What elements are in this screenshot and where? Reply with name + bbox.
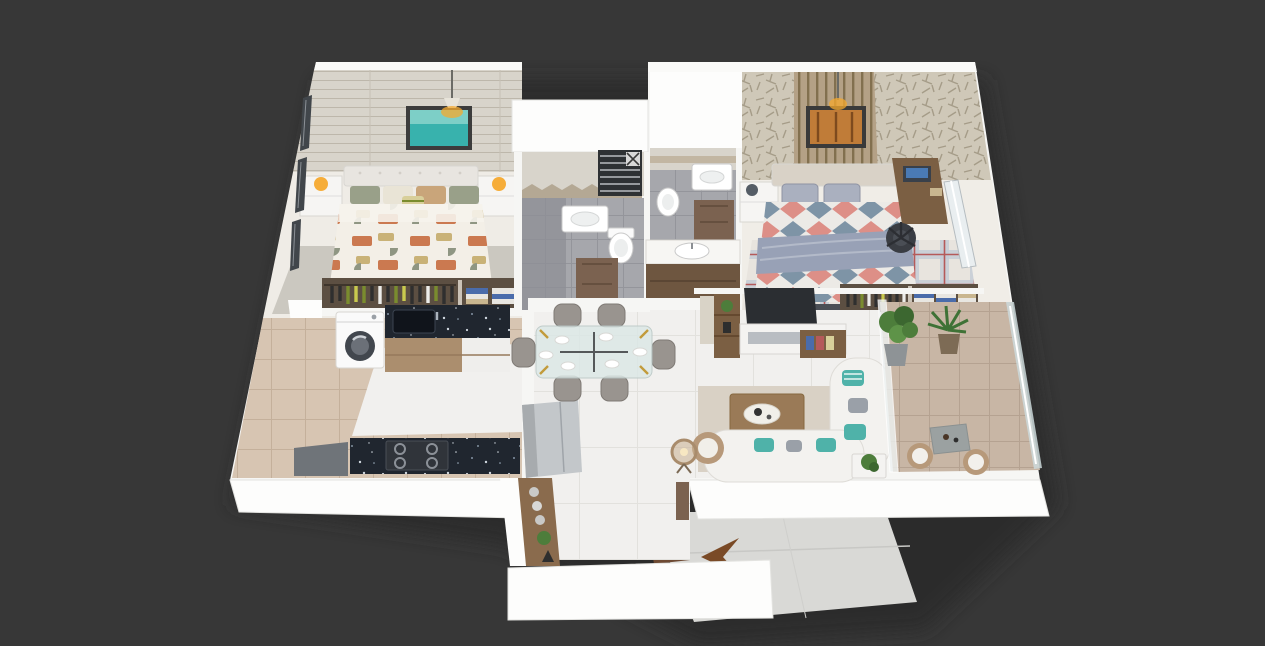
plate (599, 333, 613, 341)
front-wall-left (230, 480, 520, 518)
tufted-headboard (344, 166, 478, 186)
books (806, 336, 814, 350)
shower-corner (522, 198, 566, 310)
plate (561, 362, 575, 370)
refrigerator (522, 400, 582, 478)
side-table-plant (852, 454, 886, 478)
laptop-screen (906, 168, 928, 178)
teal-cushion (842, 370, 864, 386)
pillow (449, 186, 479, 204)
pendant-glow (829, 98, 847, 110)
dining-chair (598, 304, 625, 327)
room-common-bathroom (512, 100, 652, 310)
dining-chair (652, 340, 675, 369)
books (826, 336, 834, 350)
dark-table-lamp (746, 184, 758, 196)
pendant-glow (441, 106, 463, 118)
books (930, 188, 942, 196)
coffee-cup (943, 434, 949, 440)
washer-knob (372, 315, 377, 320)
coffee-cup (954, 438, 959, 443)
gray-cabinet (294, 442, 348, 476)
kitchen-sink (393, 310, 435, 333)
floor-plan-render (0, 0, 1265, 646)
glass-dining-table (536, 326, 652, 378)
toilet (608, 228, 634, 263)
plate (605, 360, 619, 368)
lamp-bulb (680, 448, 688, 456)
teal-cushion (754, 438, 774, 452)
dining-chair (554, 376, 581, 401)
shelf-plant (721, 300, 733, 312)
bedroom2-wall-top (648, 62, 977, 72)
dining-chair (601, 376, 628, 401)
towel-warmer (598, 150, 642, 196)
room-balcony (878, 300, 1042, 475)
washing-machine (336, 312, 384, 368)
mosaic-strip (650, 156, 742, 163)
tv-wall-strip (694, 288, 984, 294)
teal-cushion (844, 424, 866, 440)
cup (767, 415, 772, 420)
console-plant (537, 531, 551, 545)
closet-divider (458, 280, 462, 306)
nightstand-left (300, 176, 342, 216)
planter-pot (938, 334, 960, 354)
wall-strip (514, 152, 522, 310)
dining-chair (554, 304, 581, 327)
table-lamp-glow (314, 177, 328, 191)
duvet-fold (338, 204, 484, 222)
room-attached-bathroom (646, 72, 744, 298)
bedroom1-wall-top (314, 62, 522, 70)
headboard (772, 164, 902, 186)
shelf-tower (714, 294, 740, 358)
pillow (350, 186, 380, 204)
sofa-seat (704, 430, 864, 482)
serving-tray (744, 404, 780, 424)
basin-bowl (700, 171, 724, 183)
front-wall-right (688, 480, 1049, 519)
textured-pillar (700, 296, 714, 344)
basin-bowl (571, 212, 599, 226)
bath2-back-wall (650, 72, 742, 148)
table-lamp-glow (492, 177, 506, 191)
decor-vase (535, 515, 545, 525)
nightstand-right (478, 176, 520, 216)
bistro-table (930, 424, 970, 454)
shelf-vase (723, 322, 731, 333)
teal-cushion (816, 438, 836, 452)
teapot (754, 408, 762, 416)
open-entry-door (676, 482, 689, 520)
books (816, 336, 824, 350)
plate (539, 351, 553, 359)
counter-sink-run (385, 305, 510, 372)
plate (555, 336, 569, 344)
foyer-front-wall (508, 560, 773, 620)
dining-half-wall (528, 298, 650, 312)
toilet (657, 188, 679, 216)
decor-vase (529, 487, 539, 497)
gray-cushion (848, 398, 868, 413)
dining-chair (512, 338, 535, 367)
gray-cushion (786, 440, 802, 452)
bathroom-top-wall-face (512, 100, 648, 152)
tv-panel (744, 288, 817, 324)
plate (633, 348, 647, 356)
planter-pot (884, 344, 908, 366)
room-kitchen (232, 305, 534, 478)
decor-vase (532, 501, 542, 511)
